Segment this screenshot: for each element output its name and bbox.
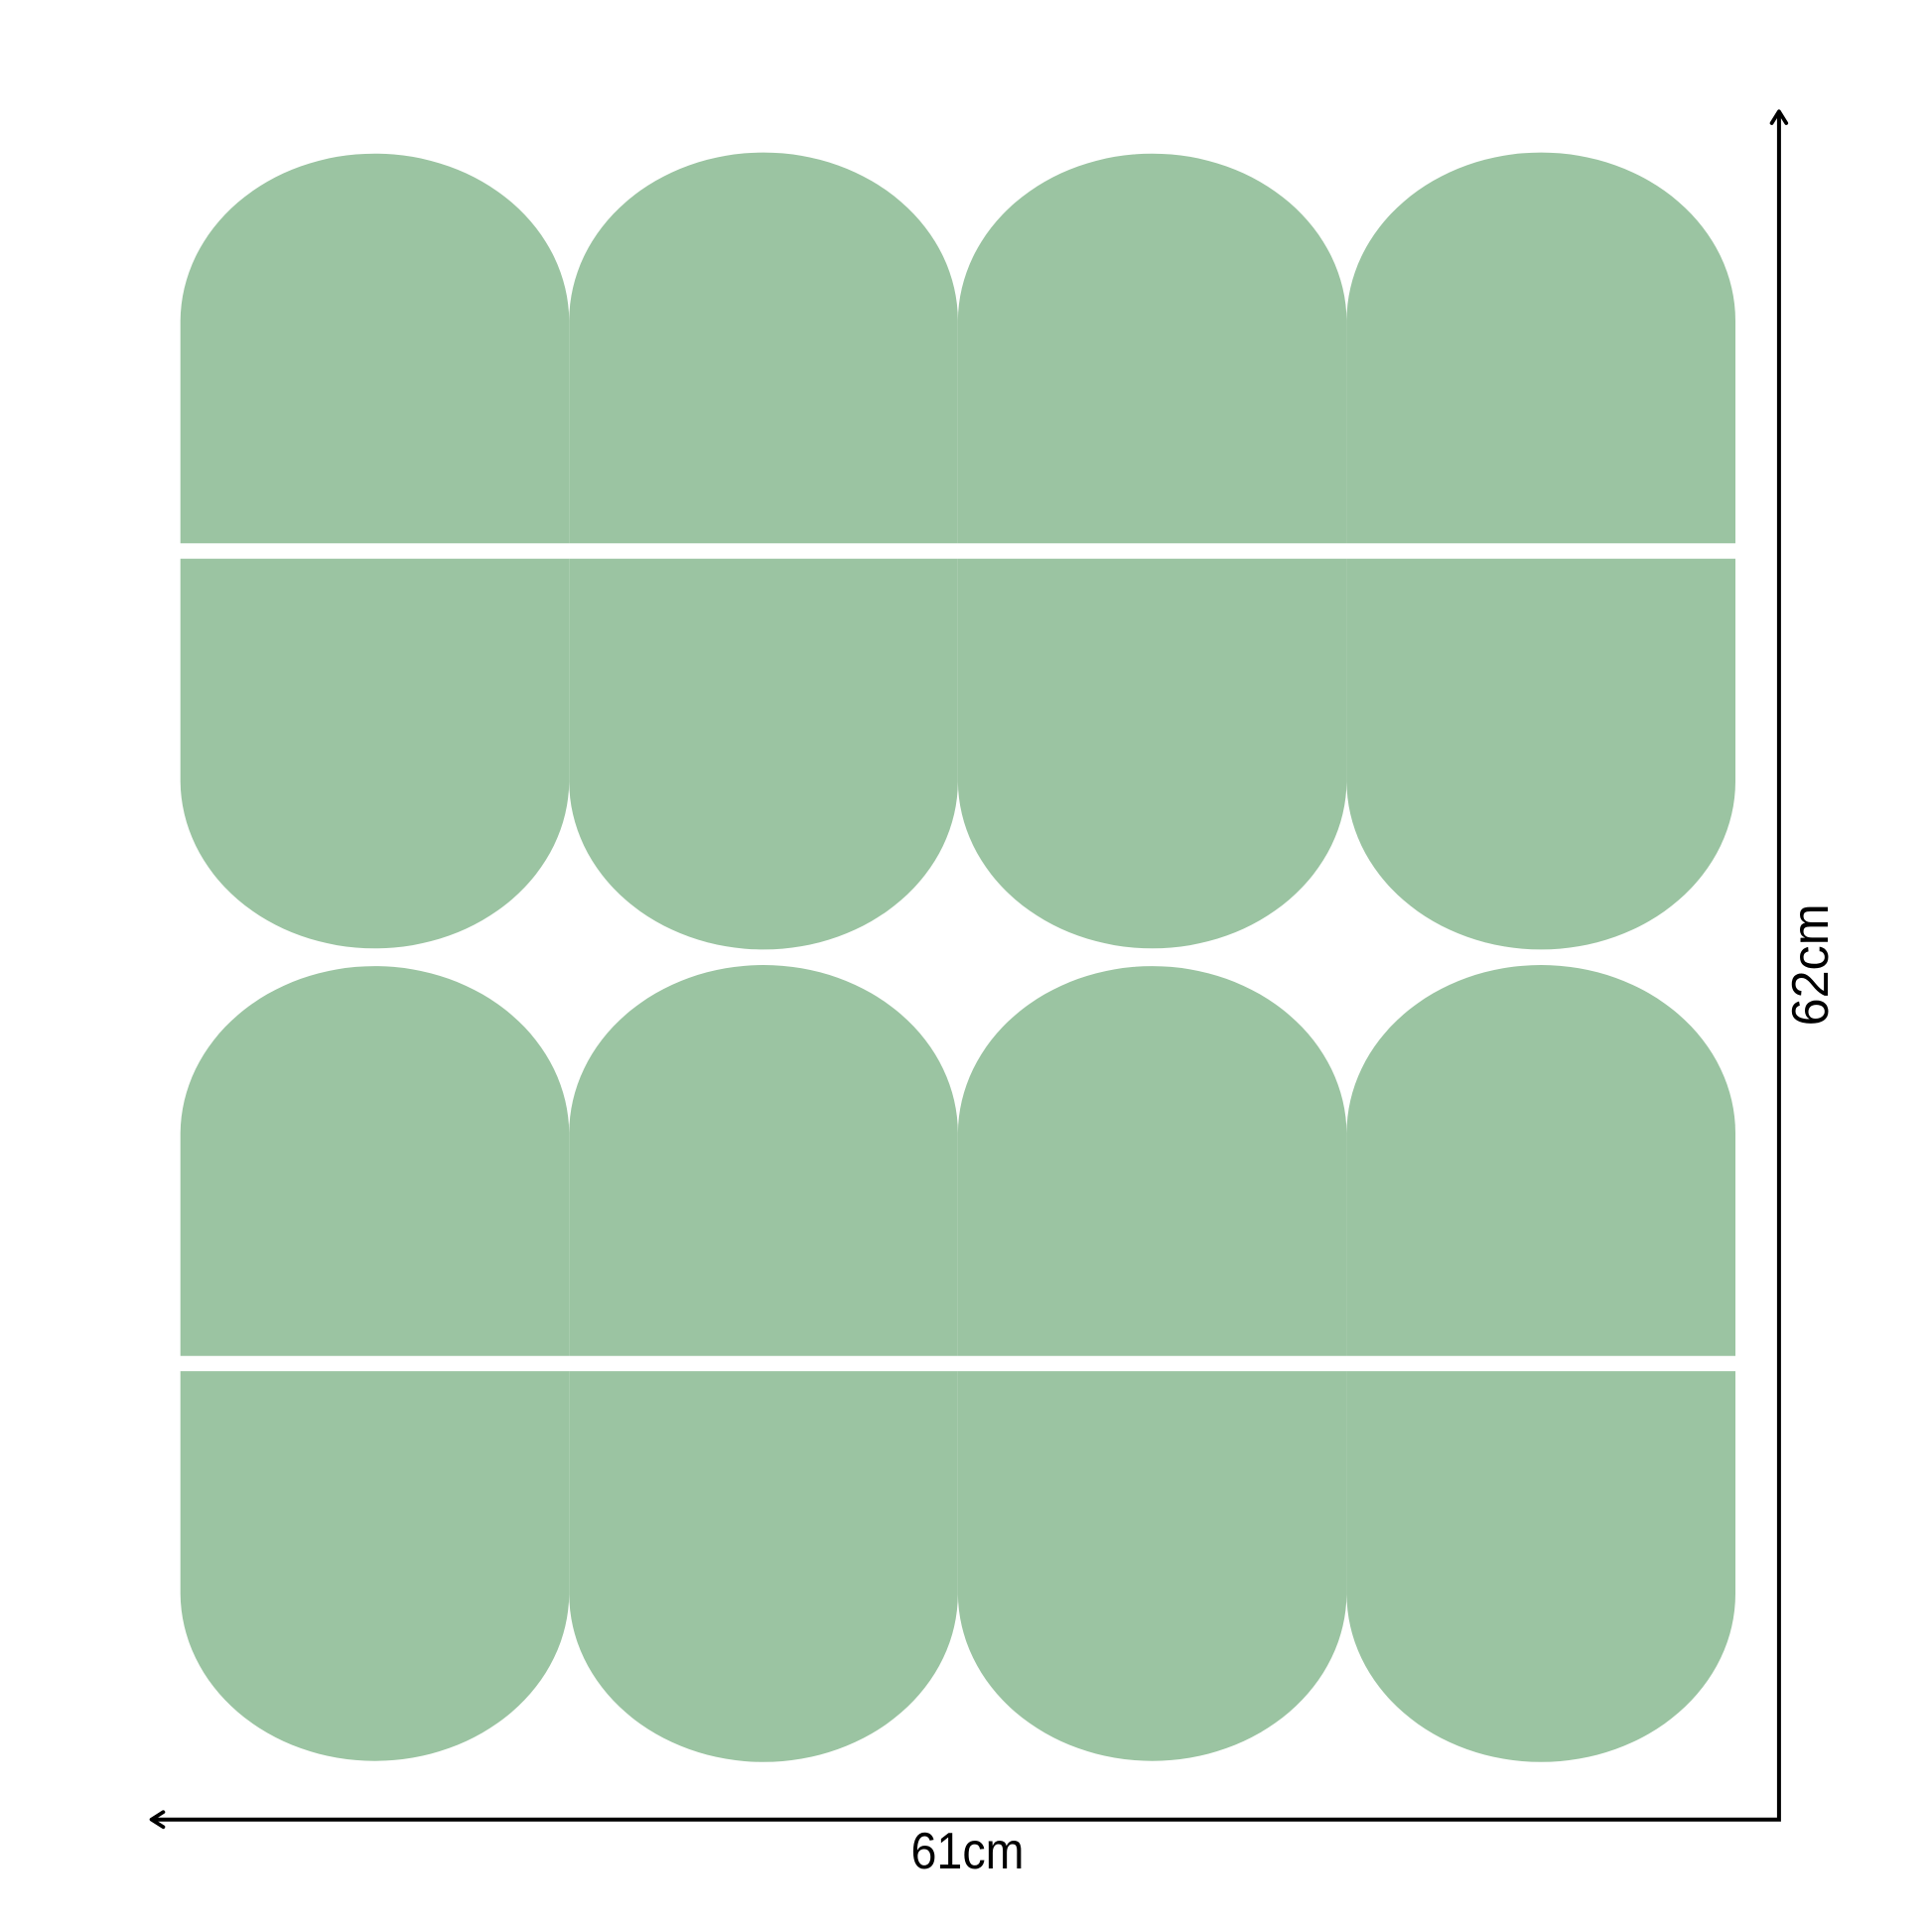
svg-text:62cm: 62cm [1782, 903, 1840, 1026]
svg-text:61cm: 61cm [911, 1823, 1025, 1880]
